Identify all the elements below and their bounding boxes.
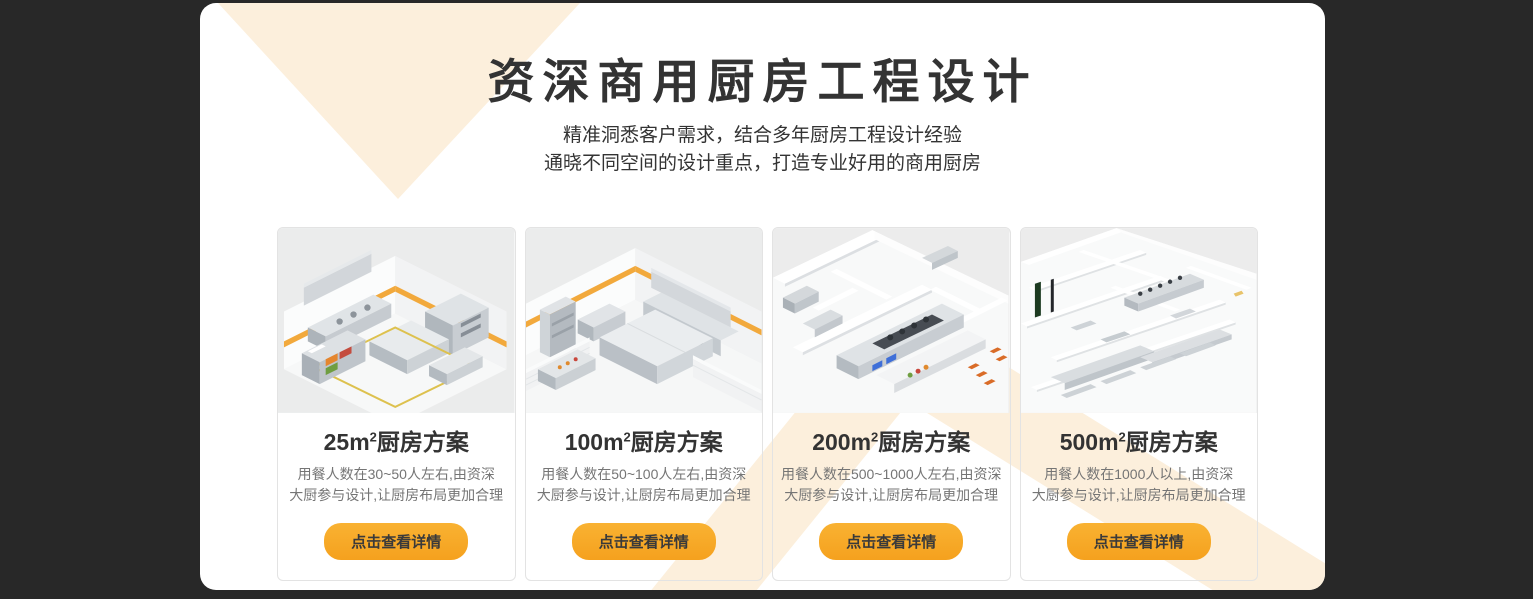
card-title: 100m2厨房方案 — [526, 428, 763, 456]
page-title: 资深商用厨房工程设计 — [200, 3, 1325, 109]
card-title: 25m2厨房方案 — [278, 428, 515, 456]
view-details-button[interactable]: 点击查看详情 — [819, 523, 963, 560]
card-description: 用餐人数在500~1000人左右,由资深 大厨参与设计,让厨房布局更加合理 — [773, 464, 1010, 506]
page-subtitle: 精准洞悉客户需求，结合多年厨房工程设计经验 通晓不同空间的设计重点，打造专业好用… — [200, 122, 1325, 178]
kitchen-plan-card-500m2: 500m2厨房方案 用餐人数在1000人以上,由资深 大厨参与设计,让厨房布局更… — [1020, 227, 1259, 581]
kitchen-plan-card-100m2: 100m2厨房方案 用餐人数在50~100人左右,由资深 大厨参与设计,让厨房布… — [525, 227, 764, 581]
kitchen-plan-cards-row: 25m2厨房方案 用餐人数在30~50人左右,由资深 大厨参与设计,让厨房布局更… — [277, 227, 1258, 581]
card-description: 用餐人数在30~50人左右,由资深 大厨参与设计,让厨房布局更加合理 — [278, 464, 515, 506]
kitchen-illustration-200m2 — [773, 228, 1010, 413]
subtitle-line-2: 通晓不同空间的设计重点，打造专业好用的商用厨房 — [200, 150, 1325, 178]
card-title: 200m2厨房方案 — [773, 428, 1010, 456]
card-description: 用餐人数在1000人以上,由资深 大厨参与设计,让厨房布局更加合理 — [1021, 464, 1258, 506]
view-details-button[interactable]: 点击查看详情 — [1067, 523, 1211, 560]
view-details-button[interactable]: 点击查看详情 — [572, 523, 716, 560]
subtitle-line-1: 精准洞悉客户需求，结合多年厨房工程设计经验 — [200, 122, 1325, 150]
card-description: 用餐人数在50~100人左右,由资深 大厨参与设计,让厨房布局更加合理 — [526, 464, 763, 506]
kitchen-illustration-500m2 — [1021, 228, 1258, 413]
content-panel: 资深商用厨房工程设计 精准洞悉客户需求，结合多年厨房工程设计经验 通晓不同空间的… — [200, 3, 1325, 590]
kitchen-illustration-25m2 — [278, 228, 515, 413]
kitchen-plan-card-200m2: 200m2厨房方案 用餐人数在500~1000人左右,由资深 大厨参与设计,让厨… — [772, 227, 1011, 581]
page-background: { "colors": { "page_background": "#28282… — [0, 0, 1533, 599]
card-title: 500m2厨房方案 — [1021, 428, 1258, 456]
kitchen-illustration-100m2 — [526, 228, 763, 413]
kitchen-plan-card-25m2: 25m2厨房方案 用餐人数在30~50人左右,由资深 大厨参与设计,让厨房布局更… — [277, 227, 516, 581]
view-details-button[interactable]: 点击查看详情 — [324, 523, 468, 560]
